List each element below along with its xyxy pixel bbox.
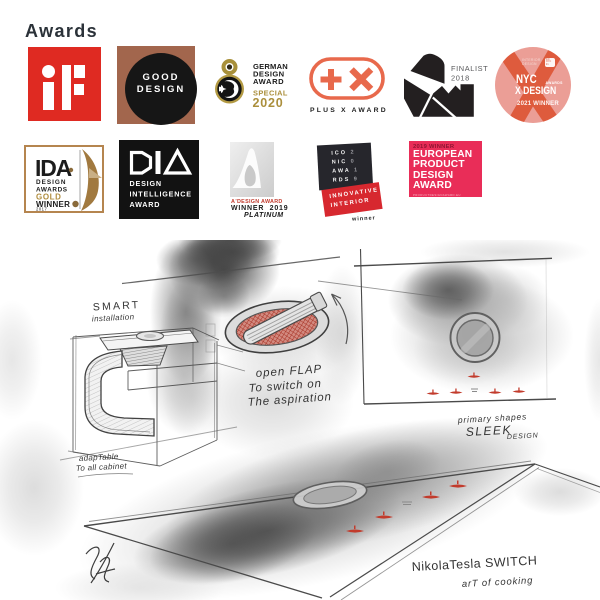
svg-text:AWARD: AWARD bbox=[253, 77, 284, 86]
svg-text:INTELLIGENCE: INTELLIGENCE bbox=[130, 190, 192, 199]
svg-text:FINALIST: FINALIST bbox=[451, 64, 488, 73]
svg-text:PLUS X AWARD: PLUS X AWARD bbox=[310, 107, 388, 114]
svg-text:IDA: IDA bbox=[35, 155, 72, 181]
svg-text:2018: 2018 bbox=[451, 74, 470, 83]
svg-text:SLEEK: SLEEK bbox=[465, 423, 512, 439]
svg-text:2020: 2020 bbox=[253, 96, 284, 109]
svg-text:SMART: SMART bbox=[93, 299, 141, 313]
svg-text:2017: 2017 bbox=[36, 207, 47, 212]
svg-text:arT of cooking: arT of cooking bbox=[462, 575, 534, 590]
svg-text:To all cabinet: To all cabinet bbox=[76, 461, 128, 473]
svg-text:AWARD: AWARD bbox=[130, 200, 161, 209]
svg-text:DESIGN: DESIGN bbox=[36, 179, 67, 186]
svg-text:installation: installation bbox=[92, 312, 135, 323]
svg-text:NikolaTesla SWITCH: NikolaTesla SWITCH bbox=[411, 553, 537, 574]
svg-text:DESIGN: DESIGN bbox=[130, 179, 162, 188]
